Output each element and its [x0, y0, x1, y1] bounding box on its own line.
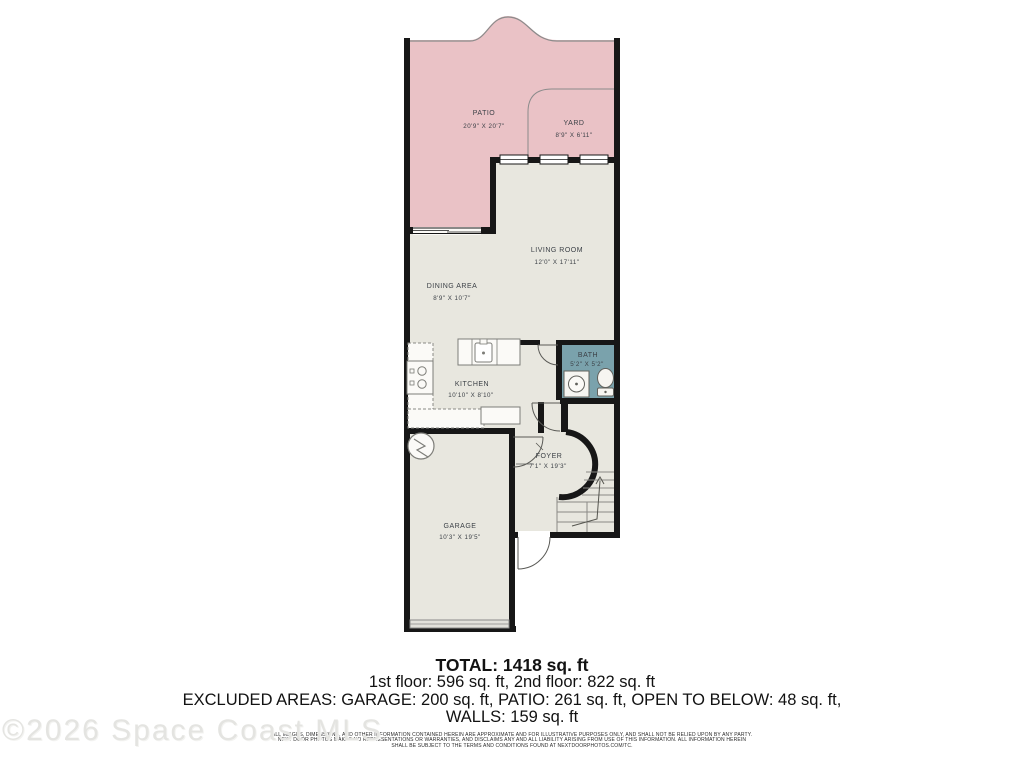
patio-slider-door: [413, 227, 481, 235]
room-dims-kitchen: 10'10" X 8'10": [448, 392, 493, 399]
kitchen-island: [458, 339, 520, 365]
garage-door: [410, 620, 509, 628]
room-label-patio: PATIO: [473, 110, 496, 117]
wall-patio-bottom-left: [404, 227, 413, 234]
floor-plan-page: PATIO 20'9" X 20'7" YARD 8'9" X 6'11" LI…: [0, 0, 1024, 768]
toilet-icon: [598, 369, 614, 397]
room-dims-living: 12'0" X 17'11": [535, 259, 580, 266]
wall-patio-divider: [490, 157, 496, 233]
wall-bath-bottom: [560, 398, 620, 404]
wall-bath-top: [556, 340, 620, 345]
wall-corridor-left: [538, 402, 544, 433]
burner: [418, 380, 426, 388]
floor-plan-drawing: PATIO 20'9" X 20'7" YARD 8'9" X 6'11" LI…: [0, 0, 1024, 768]
room-label-bath: BATH: [578, 352, 598, 359]
wall-bath-left: [556, 340, 562, 400]
floor-areas-text: 1st floor: 596 sq. ft, 2nd floor: 822 sq…: [0, 674, 1024, 692]
room-dims-yard: 8'9" X 6'11": [555, 132, 592, 139]
kitchen-counter-bottom: [408, 409, 484, 428]
stove-icon: [407, 361, 433, 394]
wall-corridor-right-stub: [561, 402, 568, 432]
wall-left-exterior: [404, 38, 410, 632]
sink-drain: [482, 352, 485, 355]
window: [540, 155, 568, 164]
kitchen-counter-solid: [481, 407, 520, 424]
room-label-yard: YARD: [564, 120, 585, 127]
wall-patio-bottom-right: [481, 227, 496, 234]
sink-faucet: [480, 339, 487, 344]
room-label-dining: DINING AREA: [427, 283, 478, 290]
wall-right-exterior: [614, 38, 620, 538]
wall-kitchen-pass: [518, 340, 540, 345]
bath-sink-icon: [564, 371, 589, 397]
drain: [575, 383, 578, 386]
room-dims-patio: 20'9" X 20'7": [463, 123, 504, 130]
wall-garage-right: [509, 428, 515, 632]
total-area-text: TOTAL: 1418 sq. ft: [0, 656, 1024, 674]
room-label-garage: GARAGE: [444, 523, 477, 530]
room-dims-garage: 10'3" X 19'5": [439, 534, 480, 541]
toilet-button: [604, 391, 606, 393]
room-dims-dining: 8'9" X 10'7": [433, 295, 471, 302]
toilet-bowl: [598, 369, 614, 388]
front-door-opening: [518, 531, 550, 539]
mls-watermark: ©2026 Space Coast MLS: [2, 714, 383, 748]
excluded-areas-text: EXCLUDED AREAS: GARAGE: 200 sq. ft, PATI…: [0, 692, 1024, 710]
room-label-living: LIVING ROOM: [531, 247, 583, 254]
room-dims-foyer: 7'1" X 19'3": [529, 463, 567, 470]
front-door: [518, 537, 550, 569]
room-dims-bath: 5'2" X 5'2": [570, 361, 604, 368]
stove-body: [407, 361, 433, 394]
burner: [418, 367, 426, 375]
living-windows: [500, 155, 608, 164]
window: [580, 155, 608, 164]
water-heater-icon: [408, 433, 434, 459]
window: [500, 155, 528, 164]
bath-fixtures: [564, 369, 614, 398]
room-label-foyer: FOYER: [536, 453, 563, 460]
room-label-kitchen: KITCHEN: [455, 381, 489, 388]
water-heater-circle: [408, 433, 434, 459]
door-arc: [518, 537, 550, 569]
